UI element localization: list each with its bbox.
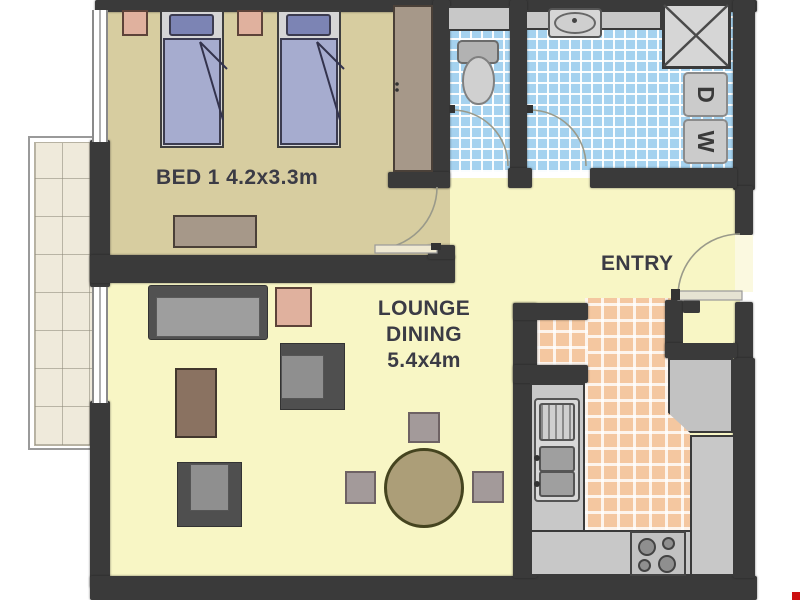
- bed-2-pillow: [286, 14, 331, 36]
- balcony-tiles: [34, 142, 94, 446]
- side-table: [275, 287, 312, 327]
- entry-label: ENTRY: [601, 251, 673, 277]
- wall-bedroom-door-step: [428, 245, 455, 259]
- wall-kitchen-arm-top: [513, 303, 588, 320]
- burner: [658, 555, 676, 573]
- balcony-sliding-door: [92, 287, 108, 403]
- nightstand-1: [122, 10, 148, 36]
- dryer: D: [683, 72, 728, 117]
- wall-nook-bottom: [665, 343, 737, 358]
- dining-table: [384, 448, 464, 528]
- wall-right-low: [733, 358, 755, 578]
- wall-kitchen-arm-bottom: [513, 365, 588, 383]
- armchair-1-seat: [281, 355, 324, 399]
- wall-right-entry-lower: [735, 302, 753, 360]
- burner: [662, 537, 675, 550]
- wall-bath-bottom: [590, 168, 737, 188]
- wall-bottom: [90, 576, 757, 600]
- washer: W: [683, 119, 728, 164]
- corner-marker: [792, 592, 800, 600]
- kitchen-counter-right: [690, 435, 735, 576]
- lounge-label-line2: DINING: [354, 322, 494, 348]
- wardrobe: [393, 5, 433, 172]
- kitchen-sink-drainer: [539, 403, 575, 441]
- washer-label: W: [685, 121, 726, 162]
- sofa-cushions: [156, 297, 260, 337]
- dining-chair-top: [408, 412, 440, 443]
- bedroom-window: [92, 10, 108, 142]
- kitchen-niche-floor: [537, 320, 588, 365]
- vanity-sink-basin: [554, 12, 596, 34]
- wall-bedroom-bottom: [90, 255, 455, 283]
- wall-left-low: [90, 401, 110, 588]
- entry-doorway: [735, 235, 753, 292]
- balcony: [28, 136, 92, 450]
- wall-right-top: [733, 0, 755, 190]
- wall-nook-stub: [683, 300, 700, 313]
- lounge-label: LOUNGE DINING 5.4x4m: [354, 296, 494, 374]
- shower: [662, 3, 731, 69]
- armchair-2-seat: [190, 464, 229, 511]
- nightstand-2: [237, 10, 263, 36]
- vanity-sink-drain: [572, 18, 577, 23]
- burner: [638, 559, 651, 572]
- coffee-table: [175, 368, 217, 438]
- lounge-label-line3: 5.4x4m: [354, 348, 494, 374]
- dining-chair-left: [345, 471, 376, 504]
- kitchen-sink-basin-1: [539, 446, 575, 472]
- kitchen-sink-basin-2: [539, 471, 575, 497]
- kitchen-faucet-2: [534, 481, 540, 487]
- bed-1-blanket: [163, 38, 221, 145]
- bedroom-label: BED 1 4.2x3.3m: [156, 165, 318, 191]
- lounge-label-line1: LOUNGE: [354, 296, 494, 322]
- wall-bath-bottom-pier: [508, 168, 532, 188]
- floor-plan: D W: [0, 0, 800, 600]
- wall-bedroom-stub: [388, 172, 450, 188]
- kitchen-faucet-1: [534, 455, 540, 461]
- burner: [638, 538, 656, 556]
- cooktop: [630, 531, 686, 576]
- wall-right-entry-upper: [735, 186, 753, 235]
- dryer-label: D: [685, 74, 726, 115]
- entry-closet-floor: [683, 313, 733, 343]
- entry-closet-floor-top: [700, 300, 733, 313]
- bed-2-blanket: [280, 38, 338, 145]
- dining-chair-right: [472, 471, 504, 503]
- wc-shelf: [447, 6, 511, 31]
- dresser: [173, 215, 257, 248]
- bed-1-pillow: [169, 14, 214, 36]
- toilet-bowl: [462, 56, 495, 105]
